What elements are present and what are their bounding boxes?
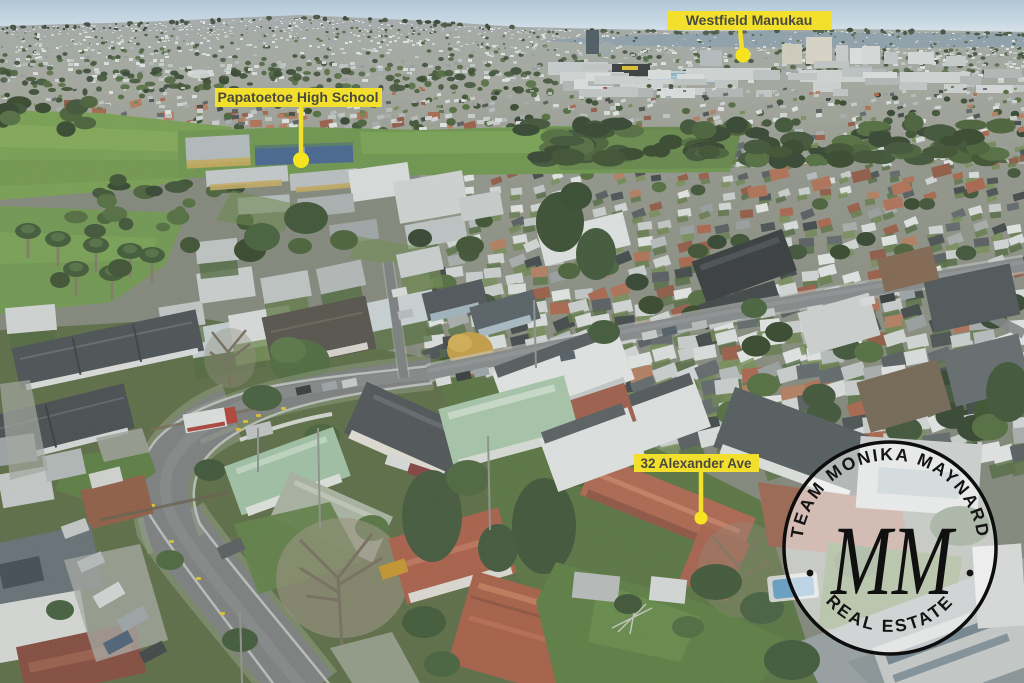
svg-text:MM: MM: [830, 505, 957, 616]
svg-text:Westfield Manukau: Westfield Manukau: [686, 12, 813, 28]
svg-text:Papatoetoe High School: Papatoetoe High School: [217, 89, 378, 105]
svg-text:32 Alexander Ave: 32 Alexander Ave: [640, 456, 752, 471]
